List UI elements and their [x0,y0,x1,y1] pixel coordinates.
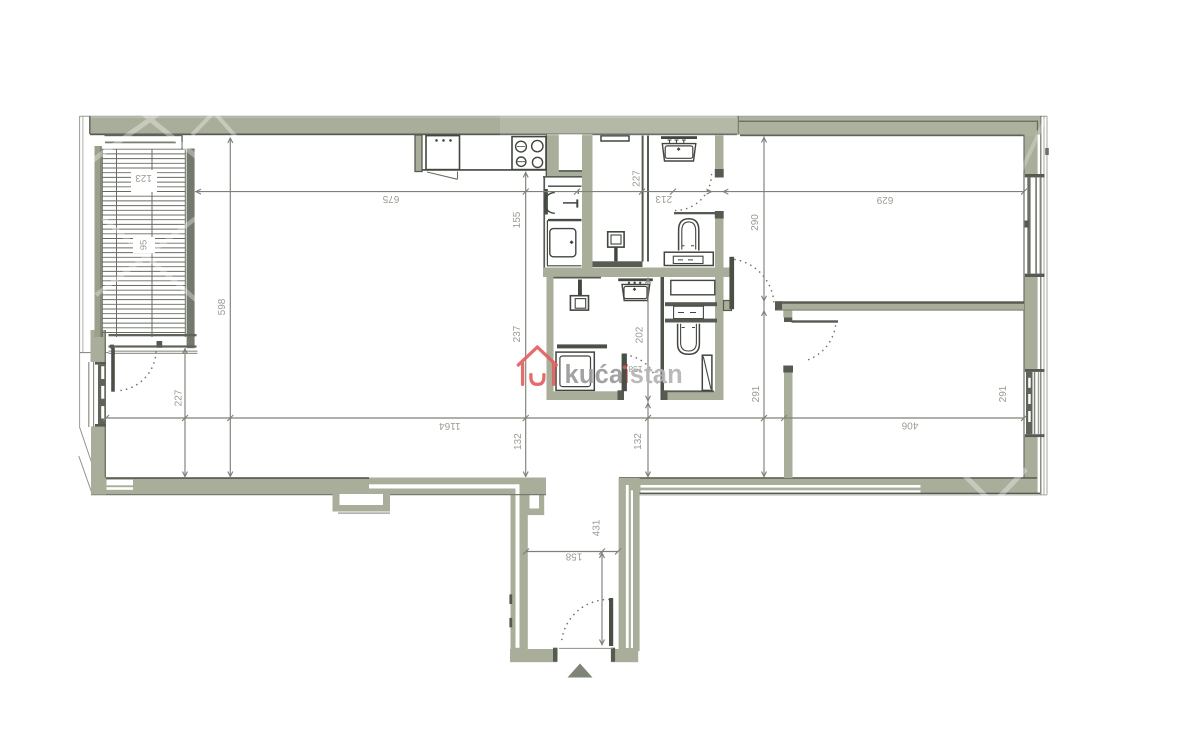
svg-text:158: 158 [565,551,582,562]
svg-text:227: 227 [632,170,643,187]
svg-text:291: 291 [998,385,1009,402]
svg-text:123: 123 [135,172,152,183]
svg-text:290: 290 [750,214,761,231]
svg-text:155: 155 [512,211,523,228]
svg-text:istan: istan [622,361,683,389]
svg-text:1164: 1164 [439,420,461,431]
svg-text:675: 675 [382,193,399,204]
svg-text:237: 237 [512,325,523,342]
svg-text:213: 213 [655,193,672,204]
svg-text:598: 598 [217,298,228,315]
svg-text:291: 291 [751,385,762,402]
svg-text:202: 202 [635,326,646,343]
svg-text:629: 629 [876,194,893,205]
svg-text:132: 132 [513,433,524,450]
svg-text:132: 132 [633,433,644,450]
svg-text:kuća: kuća [565,361,625,389]
svg-text:406: 406 [901,420,918,431]
svg-text:227: 227 [174,389,185,406]
svg-text:431: 431 [592,519,603,536]
